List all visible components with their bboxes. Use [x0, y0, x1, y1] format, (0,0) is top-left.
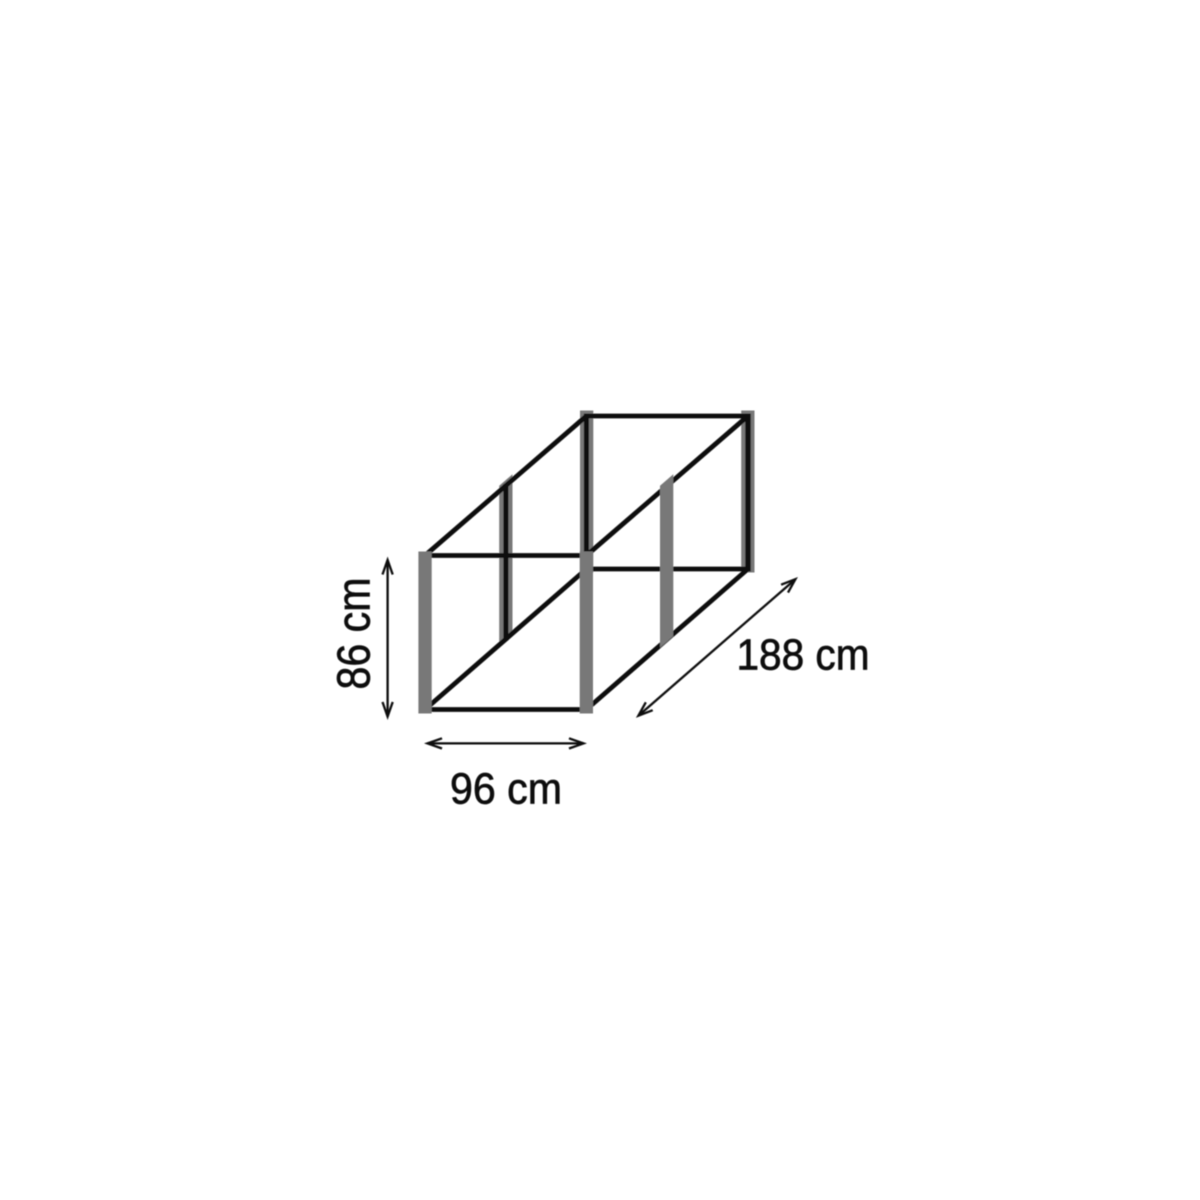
svg-text:96 cm: 96 cm	[450, 765, 562, 814]
svg-text:86 cm: 86 cm	[328, 578, 380, 690]
svg-text:188 cm: 188 cm	[737, 631, 870, 680]
